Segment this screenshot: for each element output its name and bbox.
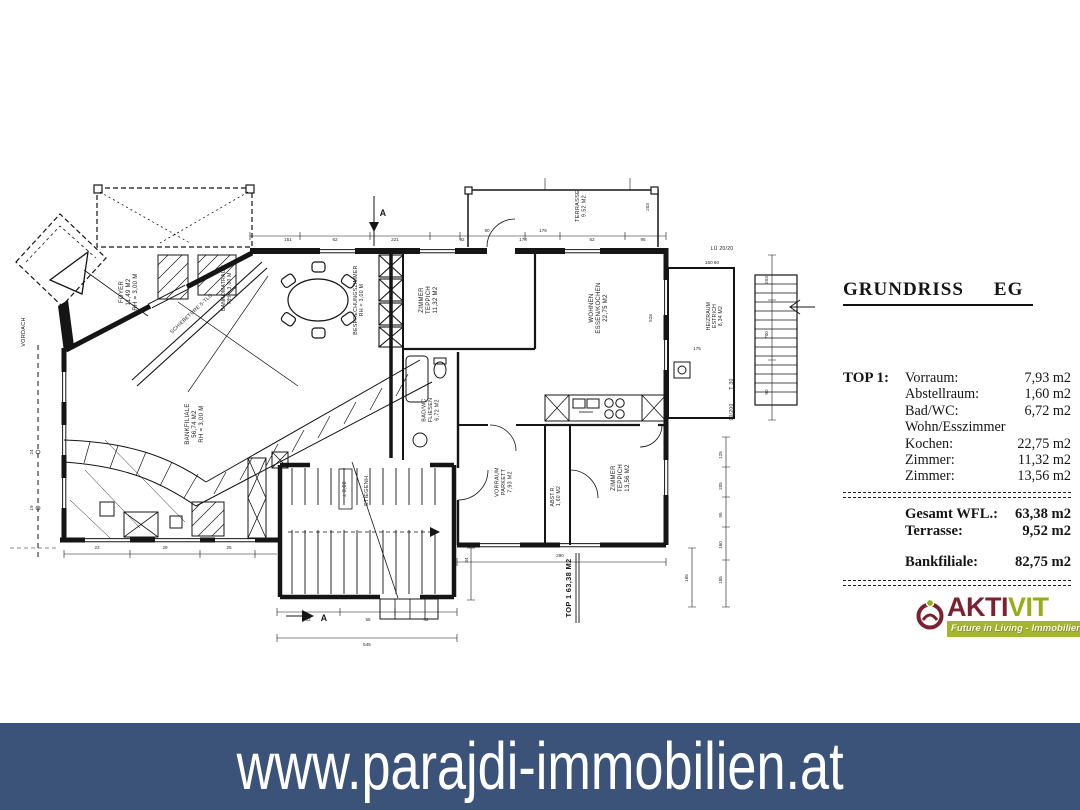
top1-label: TOP 1: <box>843 370 889 387</box>
brand-vit: VIT <box>1008 592 1049 622</box>
heizraum-annex <box>668 268 815 418</box>
bank-value: 82,75 m2 <box>1015 554 1071 571</box>
plan-dim: 95 <box>640 237 646 242</box>
plan-dim: 90 <box>764 389 769 395</box>
door-arcs <box>458 219 662 500</box>
label-foyer: FOYER11,49 M2RH = 3,00 M <box>119 273 139 310</box>
plan-dim: 178 <box>519 237 527 242</box>
room-name: Wohn/Esszimmer <box>905 419 1006 435</box>
label-door-size: 90/200 <box>729 403 735 420</box>
label-zimmer-2: ZIMMERTEPPICH13,56 M2 <box>611 464 631 492</box>
brand-akti: AKTI <box>947 592 1008 622</box>
table-row: Abstellraum:1,60 m2 <box>905 386 1071 402</box>
plan-dim: 221 <box>391 237 399 242</box>
plan-dim: 23 <box>94 545 100 550</box>
label-door-t30: T 30 <box>729 378 735 389</box>
plan-dim: 55 <box>365 617 371 622</box>
table-row: Zimmer:13,56 m2 <box>905 468 1071 484</box>
room-name: Abstellraum: <box>905 386 979 402</box>
bankfiliale-row: Bankfiliale:82,75 m2 <box>843 554 1071 571</box>
label-abstellraum: ABST.R.1,60 M2 <box>550 486 562 507</box>
bank-name: Bankfiliale: <box>905 554 978 571</box>
kitchen-counter <box>545 395 666 421</box>
section-markers <box>286 196 379 622</box>
room-value: 13,56 m2 <box>1017 468 1071 484</box>
plan-dim: 95 <box>718 512 723 518</box>
label-heizraum: HEIZRAUMESTRICH8,34 M2 <box>706 302 724 331</box>
plan-dim: 62 <box>332 237 338 242</box>
label-level: ± 0,00 <box>342 481 348 497</box>
plan-dim: 290 <box>556 553 564 558</box>
label-bad-wc: BAD/WCFLIESEN6,72 M2 <box>422 398 441 423</box>
plan-dim: 92 <box>459 237 465 242</box>
plan-dim: 29 <box>162 545 168 550</box>
room-value: 7,93 m2 <box>1024 370 1071 386</box>
label-top1-area: TOP 1 63,38 M2 <box>564 559 573 618</box>
label-lueftung: LÜ 20/20 <box>711 245 734 252</box>
plan-dim: 125 <box>718 451 723 459</box>
total-value: 9,52 m2 <box>1022 523 1071 540</box>
label-besprechungszimmer: BESPRECHUNGSZIMMERRH = 3,00 M <box>353 265 365 334</box>
plan-dim: 62 <box>589 237 595 242</box>
table-row: Kochen:22,75 m2 <box>905 436 1071 452</box>
total-value: 63,38 m2 <box>1015 506 1071 523</box>
table-row: Bad/WC:6,72 m2 <box>905 403 1071 419</box>
plan-dim: 528 <box>648 314 653 322</box>
plan-dim: 205 <box>718 482 723 490</box>
plan-dim: 62 <box>423 617 429 622</box>
canopy-outline <box>94 185 254 247</box>
room-name: Zimmer: <box>905 468 955 484</box>
plan-dim: 175 <box>693 346 701 351</box>
plan-dim: 63 <box>305 617 311 622</box>
terrace-outline <box>465 178 658 247</box>
section-a-bottom: A <box>321 613 328 623</box>
room-name: Bad/WC: <box>905 403 959 419</box>
plan-dim: 185 <box>718 576 723 584</box>
plan-dim: 160 <box>718 541 723 549</box>
plan-dim: 24 <box>29 449 34 455</box>
plan-dim: 160 60 <box>705 260 719 265</box>
plan-dim: 34 <box>464 557 469 563</box>
label-zimmer-1: ZIMMERTEPPICH11,32 M2 <box>419 286 439 314</box>
total-name: Terrasse: <box>905 523 963 540</box>
section-a-top: A <box>380 208 387 218</box>
title-word-eg: EG <box>994 279 1023 301</box>
total-name: Gesamt WFL.: <box>905 506 998 523</box>
room-value: 1,60 m2 <box>1024 386 1071 402</box>
plan-dim: 19 <box>29 505 34 511</box>
aktivit-logo: AKTIVIT Future in Living - Immobilien. <box>913 594 1071 637</box>
label-stiegenhaus: STIEGENH. <box>364 474 370 507</box>
brand-tagline: Future in Living - Immobilien. <box>947 621 1080 637</box>
dashed-separator <box>843 580 1071 586</box>
label-vordach: VORDACH <box>21 317 27 347</box>
table-row: Vorraum:7,93 m2 <box>905 370 1071 386</box>
label-vorraum: VORRAUMPARKETT7,93 M2 <box>495 467 514 497</box>
room-name: Vorraum: <box>905 370 958 386</box>
plan-dim: 203 <box>645 203 650 211</box>
brand-wordmark: AKTIVIT <box>947 594 1080 620</box>
room-name: Zimmer: <box>905 452 955 468</box>
plan-dim: 700 <box>764 331 769 339</box>
room-value: 6,72 m2 <box>1024 403 1071 419</box>
label-bankfiliale: BANKFILIALE56,74 M2RH = 3,00 M <box>185 403 205 444</box>
plan-dim: 165 <box>684 574 689 582</box>
aktivit-person-icon <box>913 596 947 632</box>
page-title: GRUNDRISS EG <box>843 279 1033 306</box>
label-wohnen: WOHNENESSEN/KOCHEN22,75 M2 <box>589 282 609 333</box>
room-name: Kochen: <box>905 436 953 452</box>
total-row: Terrasse:9,52 m2 <box>843 523 1071 540</box>
plan-dim: 151 <box>284 237 292 242</box>
plan-dim: 203 <box>764 276 769 284</box>
plan-dim: 90 <box>484 228 490 233</box>
plan-dim: 176 <box>539 228 547 233</box>
room-table: TOP 1: Vorraum:7,93 m2 Abstellraum:1,60 … <box>843 370 1071 485</box>
furniture-symbols <box>100 452 288 538</box>
total-row: Gesamt WFL.:63,38 m2 <box>843 506 1071 523</box>
table-row: Wohn/Esszimmer <box>905 419 1071 435</box>
plan-dim: 545 <box>363 642 371 647</box>
room-value: 22,75 m2 <box>1017 436 1071 452</box>
table-row: Zimmer:11,32 m2 <box>905 452 1071 468</box>
label-schiebetuere: SCHIEBETÜRE 5-TLG. <box>168 291 215 336</box>
label-terrasse: TERRASSE9,52 M2 <box>575 190 587 222</box>
label-bankomatraum: BANKOMATRAUMRH = 3,00 M <box>221 265 233 311</box>
meeting-table <box>280 262 356 338</box>
website-url: www.parajdi-immobilien.at <box>236 728 843 805</box>
title-word-grundriss: GRUNDRISS <box>843 279 964 301</box>
info-panel: GRUNDRISS EG TOP 1: Vorraum:7,93 m2 Abst… <box>843 279 1071 637</box>
footer-banner: www.parajdi-immobilien.at <box>0 723 1080 810</box>
plan-dim: 25 <box>226 545 232 550</box>
room-value: 11,32 m2 <box>1018 452 1071 468</box>
dashed-separator <box>843 492 1071 498</box>
